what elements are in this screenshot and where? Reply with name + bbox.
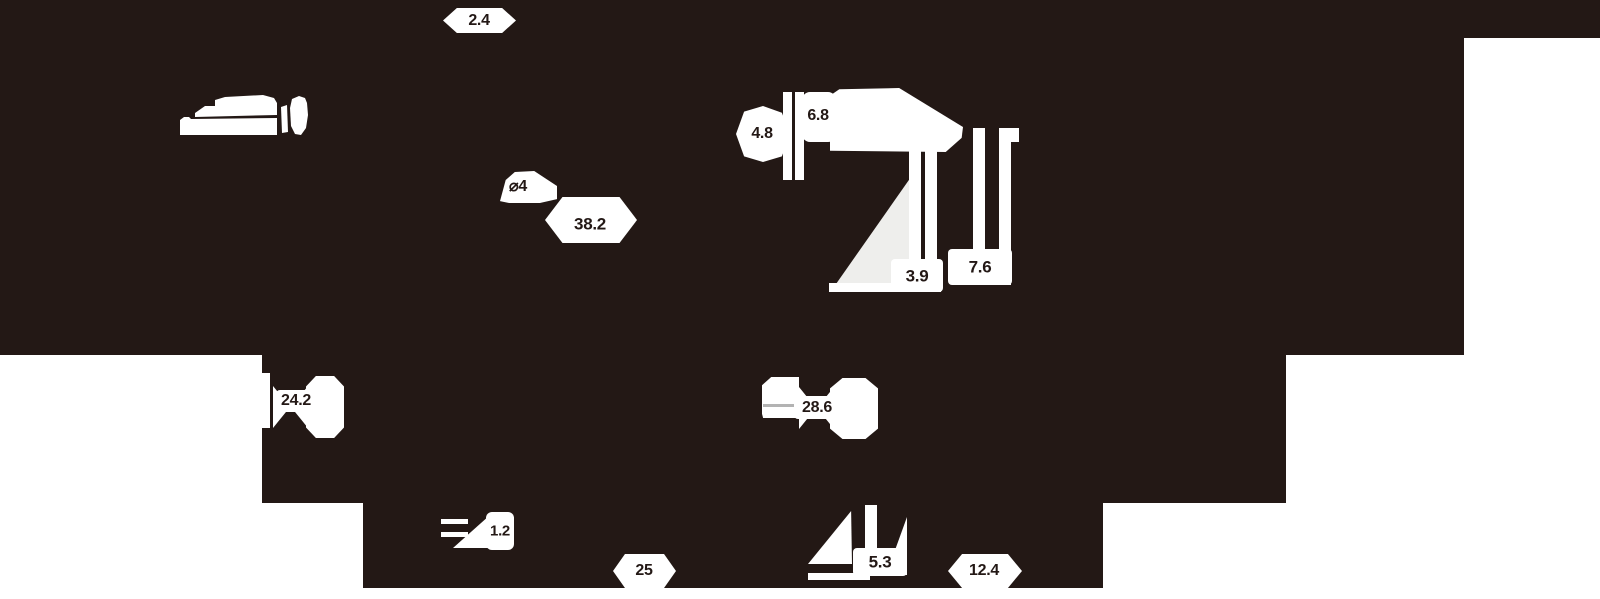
dimension-label-3-9: 3.9 [906,268,929,285]
sensor-side-view-silhouette [175,90,315,145]
dimension-label-38-2: 38.2 [574,216,606,233]
dimension-label-5-3: 5.3 [869,554,892,571]
silhouette-knob [290,96,308,135]
extension-cap [999,128,1019,142]
dimension-label-diameter: ⌀4 [509,179,527,195]
dimension-label-28-6: 28.6 [802,400,832,416]
dimension-label-25: 25 [635,563,652,579]
leader-line [441,519,468,524]
dimension-label-7-6: 7.6 [969,259,992,276]
silhouette-roof [195,95,277,117]
dimension-label-top: 2.4 [468,13,489,29]
extension-line [262,373,270,428]
leader-line [441,532,468,537]
white-region-right-mid [1286,355,1464,599]
flag-accent-line [763,404,797,407]
white-region-top-right [1464,38,1600,599]
silhouette-tab [281,105,288,133]
white-region-left [0,355,262,599]
dimension-label-4-8: 4.8 [751,126,772,142]
white-region-right-low [1103,503,1286,599]
dimension-label-1-2: 1.2 [490,524,510,539]
white-region-bottom-strip [363,588,1103,599]
dimension-label-24-2: 24.2 [281,393,311,409]
pointer-flag [830,88,963,152]
extension-line [783,92,792,180]
dimension-diagram: 2.4 ⌀4 38.2 4.8 6.8 3.9 7.6 24.2 28.6 [0,0,1600,599]
dimension-label-6-8: 6.8 [807,108,828,124]
sail-triangle [808,511,852,564]
dimension-label-12-4: 12.4 [969,563,999,579]
white-region-left-low [262,503,363,599]
silhouette-body [180,117,277,135]
